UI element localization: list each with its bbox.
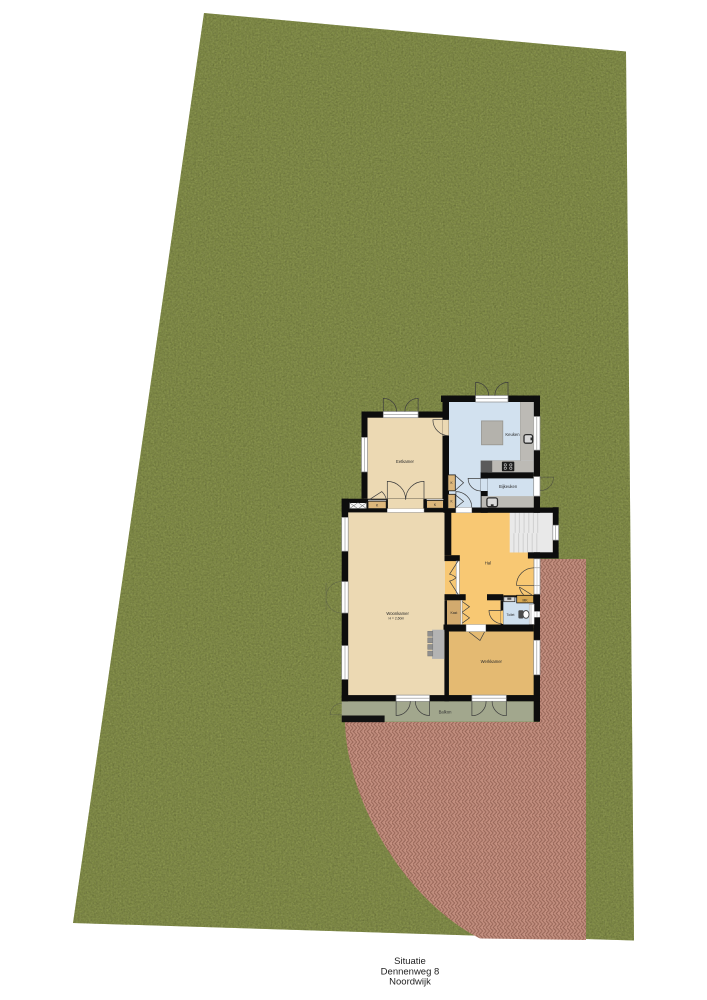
svg-text:Keuken: Keuken	[505, 432, 520, 437]
svg-text:Werkkamer: Werkkamer	[481, 659, 503, 664]
svg-text:Kast: Kast	[451, 611, 458, 615]
svg-text:Balkon: Balkon	[439, 710, 452, 715]
svg-text:MK: MK	[523, 598, 529, 602]
svg-text:Hal: Hal	[485, 561, 491, 566]
svg-text:Toilet: Toilet	[507, 613, 515, 617]
svg-text:Eetkamer: Eetkamer	[396, 459, 415, 464]
svg-text:H = 2,60m: H = 2,60m	[389, 617, 405, 621]
svg-text:Noordwijk: Noordwijk	[389, 977, 431, 988]
svg-text:Bijkeuken: Bijkeuken	[499, 484, 518, 489]
svg-text:Woonkamer: Woonkamer	[386, 611, 409, 616]
